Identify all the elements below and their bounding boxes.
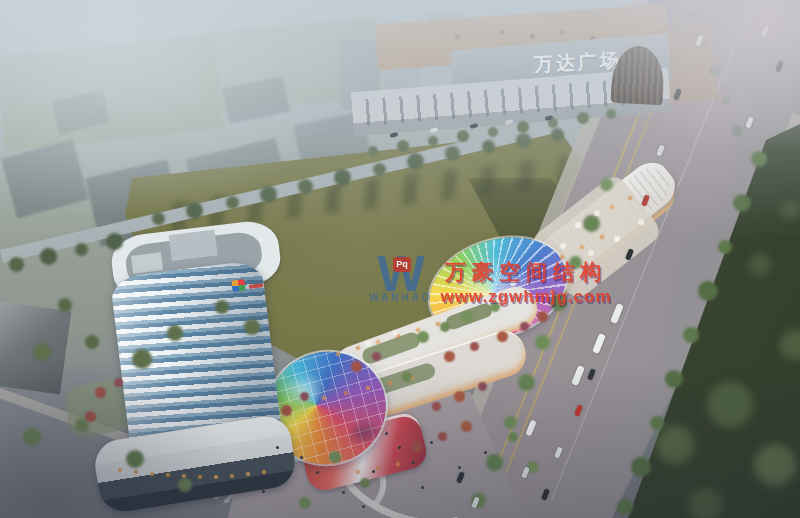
watermark-brand-text: WANHAO xyxy=(366,292,436,303)
warehouse-block xyxy=(0,301,71,394)
far-green-patch xyxy=(0,34,224,151)
car xyxy=(390,132,399,138)
car xyxy=(430,127,439,133)
tower-penthouse xyxy=(169,230,218,261)
watermark-website-url: www.zgwhmjg.com xyxy=(436,287,616,307)
tower-logo xyxy=(231,279,245,292)
aerial-rendering-scene: 万达广场 xyxy=(0,0,800,518)
mall-sign-label: 万达广场 xyxy=(533,49,622,75)
watermark-logo-badge: Pq xyxy=(393,257,411,272)
watermark: W Pq WANHAO 万豪空间结构 www.zgwhmjg.com xyxy=(366,248,616,320)
watermark-company-name: 万豪空间结构 xyxy=(436,258,616,286)
watermark-text-block: 万豪空间结构 www.zgwhmjg.com xyxy=(436,258,616,307)
tower-penthouse xyxy=(131,252,163,274)
car xyxy=(470,123,479,129)
plaza-people xyxy=(0,0,3,3)
far-building-block xyxy=(1,139,89,218)
watermark-logo: W Pq WANHAO xyxy=(366,252,436,318)
